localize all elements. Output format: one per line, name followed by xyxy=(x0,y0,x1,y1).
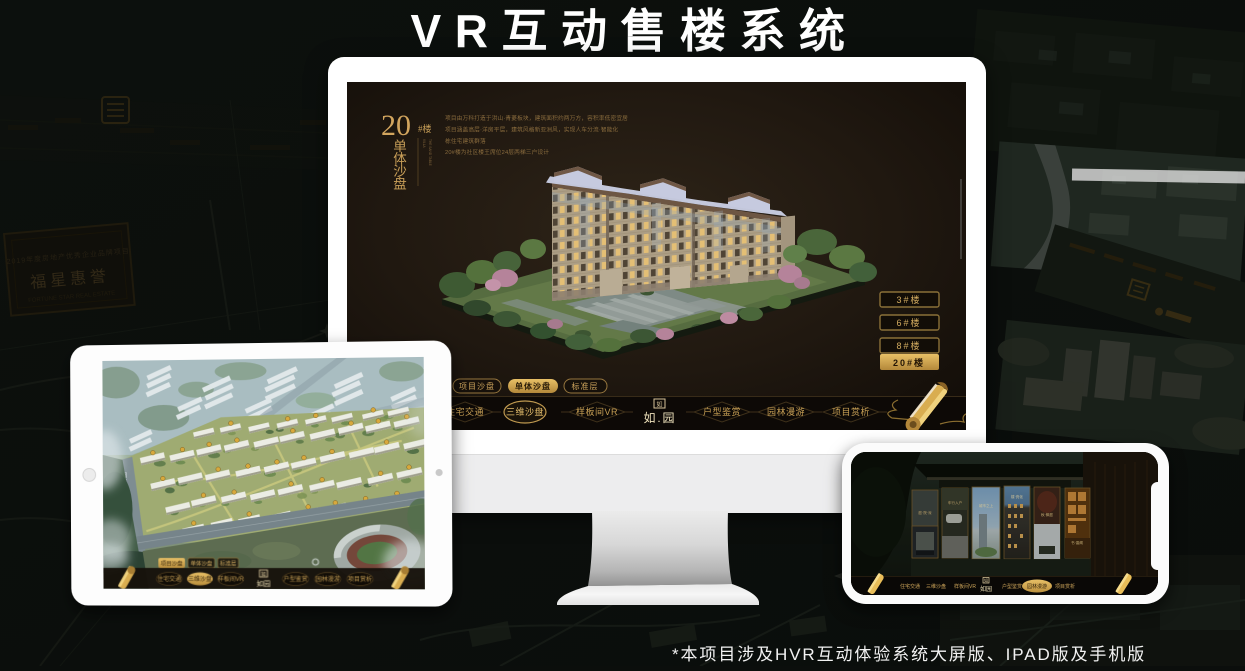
svg-text:户型鉴赏: 户型鉴赏 xyxy=(703,406,741,417)
svg-text:园林漫游: 园林漫游 xyxy=(767,406,805,417)
svg-text:园林漫游: 园林漫游 xyxy=(316,575,340,583)
svg-text:栋住宅建筑群落: 栋住宅建筑群落 xyxy=(445,137,486,145)
svg-text:单体沙盘: 单体沙盘 xyxy=(190,559,212,567)
svg-text:三维沙盘: 三维沙盘 xyxy=(188,575,212,583)
svg-text:项目沙盘: 项目沙盘 xyxy=(459,381,495,391)
svg-text:如: 如 xyxy=(656,401,662,409)
svg-text:项目沙盘: 项目沙盘 xyxy=(161,559,183,567)
svg-text:园林漫游: 园林漫游 xyxy=(1027,583,1047,590)
svg-text:20: 20 xyxy=(381,109,411,142)
svg-text:项目赏析: 项目赏析 xyxy=(832,406,870,417)
svg-text:盘: 盘 xyxy=(393,176,407,192)
svg-text:如: 如 xyxy=(261,571,266,578)
svg-text:THE SAND TABLE: THE SAND TABLE xyxy=(428,139,432,166)
svg-text:住宅交通: 住宅交通 xyxy=(446,406,484,417)
svg-text:#楼: #楼 xyxy=(418,123,432,134)
svg-text:项目赏析: 项目赏析 xyxy=(1055,583,1075,590)
svg-text:样板间VR: 样板间VR xyxy=(954,583,976,590)
svg-text:6#楼: 6#楼 xyxy=(896,317,921,328)
svg-text:如园: 如园 xyxy=(980,585,992,593)
svg-text:户型鉴赏: 户型鉴赏 xyxy=(1002,583,1022,590)
svg-text:住宅交通: 住宅交通 xyxy=(900,583,920,590)
svg-text:标准层: 标准层 xyxy=(572,381,599,391)
svg-text:户型鉴赏: 户型鉴赏 xyxy=(284,575,308,583)
svg-text:8#楼: 8#楼 xyxy=(896,340,921,351)
svg-text:20#楼为社区楼王席位24层两梯三户设计: 20#楼为社区楼王席位24层两梯三户设计 xyxy=(445,148,549,156)
svg-text:住宅交通: 住宅交通 xyxy=(157,575,181,583)
svg-text:项目涵盖高层·洋房平层，建筑风格新亚洲风，实现人车分流·智能: 项目涵盖高层·洋房平层，建筑风格新亚洲风，实现人车分流·智能化 xyxy=(445,126,619,134)
svg-text:单体沙盘: 单体沙盘 xyxy=(515,381,551,391)
svg-text:样板间VR: 样板间VR xyxy=(218,575,245,583)
svg-text:如园: 如园 xyxy=(257,579,271,588)
svg-text:3#楼: 3#楼 xyxy=(896,294,921,305)
svg-text:三维沙盘: 三维沙盘 xyxy=(926,583,946,590)
svg-text:标准层: 标准层 xyxy=(220,559,237,567)
svg-text:20#楼: 20#楼 xyxy=(893,357,925,368)
svg-text:项目由万科打造于洪山·青菱板块，建筑面积约两万方，容积率低密: 项目由万科打造于洪山·青菱板块，建筑面积约两万方，容积率低密宜居 xyxy=(445,114,628,122)
svg-text:项目赏析: 项目赏析 xyxy=(348,575,372,583)
svg-text:样板间VR: 样板间VR xyxy=(576,406,618,417)
svg-text:三维沙盘: 三维沙盘 xyxy=(506,406,544,417)
svg-text:如: 如 xyxy=(984,577,988,583)
svg-text:VILLA: VILLA xyxy=(422,139,426,149)
svg-text:如.园: 如.园 xyxy=(643,410,676,425)
